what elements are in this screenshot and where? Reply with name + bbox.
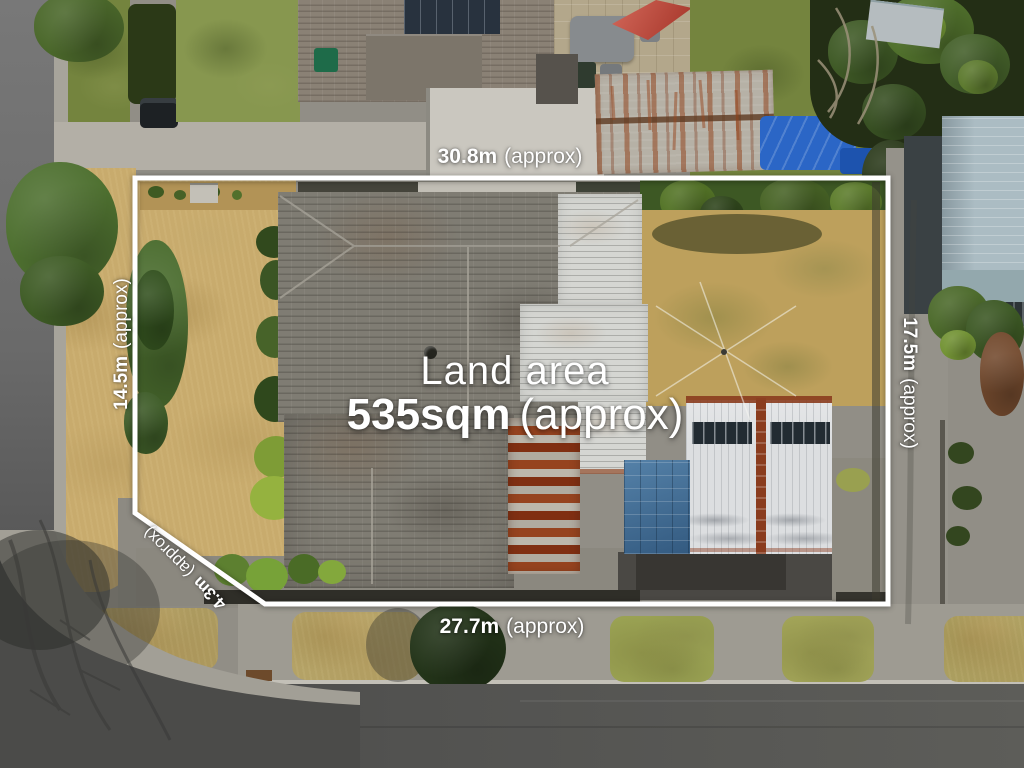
measurement-left-approx: (approx) [111,278,132,349]
measurement-right-approx: (approx) [899,378,920,449]
measurement-top-value: 30.8m [438,145,498,168]
measurement-left: 14.5m(approx) [109,244,135,444]
measurement-top: 30.8m(approx) [360,144,660,170]
land-area-annotation: Land area 535sqm(approx) [315,350,715,438]
land-area-value: 535sqm [347,390,511,439]
measurement-bottom-value: 27.7m [440,615,500,638]
land-area-title: Land area [315,350,715,392]
measurement-top-approx: (approx) [504,145,582,168]
aerial-photo: 30.8m(approx) 27.7m(approx) 14.5m(approx… [0,0,1024,768]
measurement-left-value: 14.5m [111,356,132,410]
land-area-approx: (approx) [520,390,684,439]
measurement-bottom-approx: (approx) [506,615,584,638]
measurement-right-value: 17.5m [899,317,920,371]
land-area-value-line: 535sqm(approx) [315,392,715,438]
measurement-right: 17.5m(approx) [896,283,922,483]
measurement-bottom: 27.7m(approx) [362,614,662,640]
